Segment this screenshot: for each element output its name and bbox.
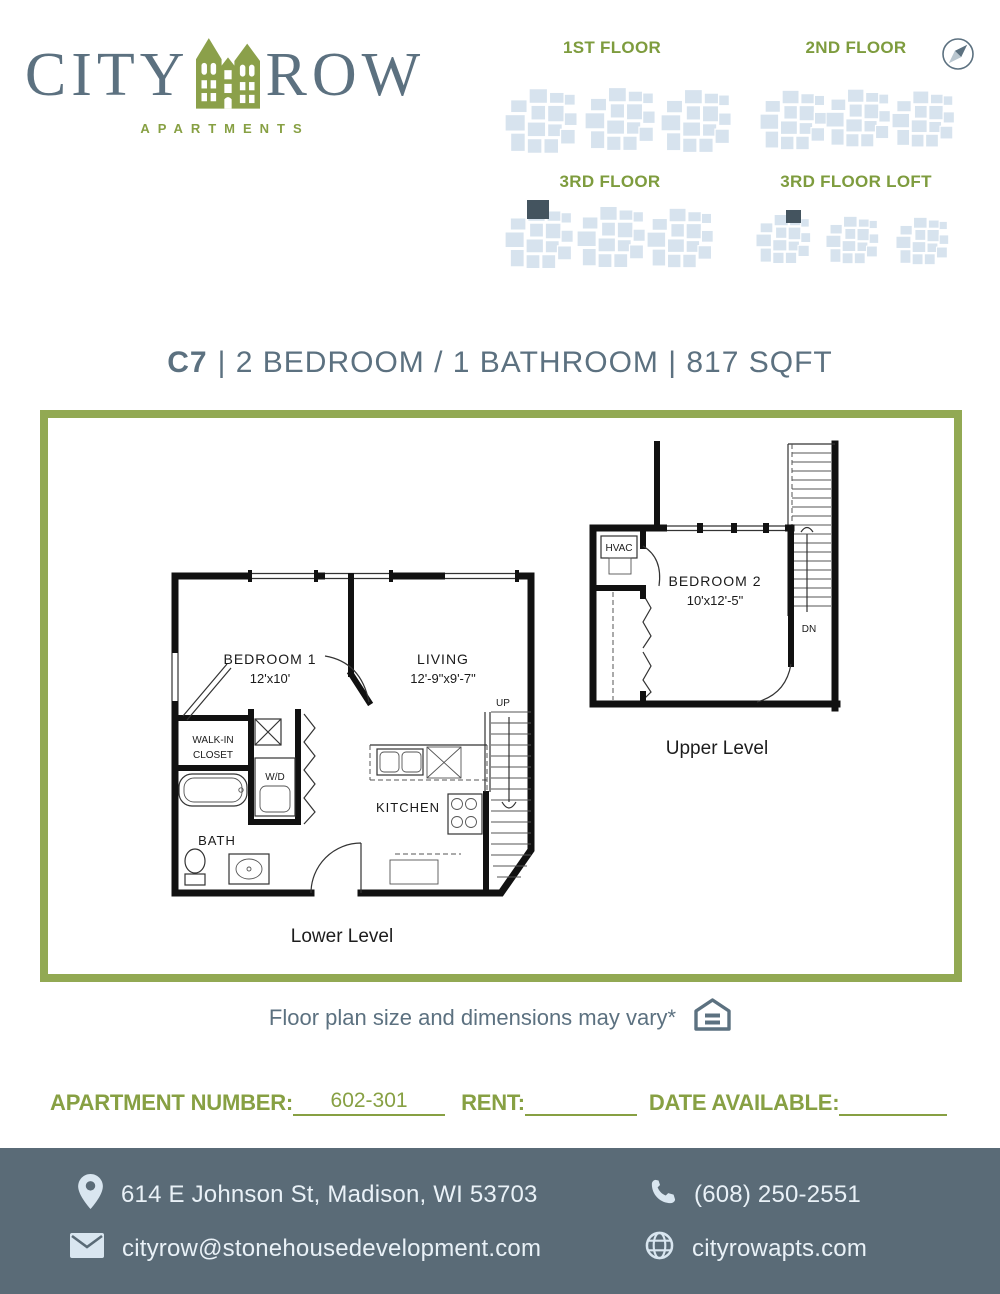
lower-level-caption: Lower Level [232,926,452,948]
label-up: UP [496,698,510,709]
phone-icon [650,1178,676,1213]
disclaimer-text: Floor plan size and dimensions may vary* [269,1005,676,1031]
disclaimer-row: Floor plan size and dimensions may vary* [0,998,1000,1037]
website-text: cityrowapts.com [692,1235,867,1263]
label-living: LIVING [417,651,469,667]
envelope-icon [70,1233,104,1265]
map-label-3rd-floor-loft: 3RD FLOOR LOFT [752,172,960,192]
apartment-number-value: 602-301 [293,1086,445,1116]
map-label-2nd-floor: 2ND FLOOR [756,38,956,58]
floor-map-3rd-loft [752,208,956,272]
rent-value [525,1086,637,1116]
label-walkin-1: WALK-IN [192,735,233,746]
label-bedroom1: BEDROOM 1 [223,651,316,667]
flyer-page: CITY [0,0,1000,1294]
label-living-dims: 12'-9"x9'-7" [410,671,476,686]
logo-row-text: ROW [266,44,426,106]
label-walkin-2: CLOSET [193,750,233,761]
plan-description: | 2 BEDROOM / 1 BATHROOM | 817 SQFT [218,346,833,379]
floor-map-1st [505,82,735,160]
label-bedroom2-dims: 10'x12'-5" [687,593,744,608]
floor-map-2nd [760,82,956,160]
floor-map-3rd [505,200,715,278]
contact-address: 614 E Johnson St, Madison, WI 53703 [78,1172,538,1218]
cityrow-logo: CITY [52,34,398,136]
label-dn: DN [802,624,816,635]
plan-title: C7| 2 BEDROOM / 1 BATHROOM | 817 SQFT [0,346,1000,380]
date-available-value [839,1086,947,1116]
map-label-1st-floor: 1ST FLOOR [502,38,722,58]
equal-housing-icon [694,998,731,1037]
unit-highlight-3rd [527,200,549,219]
contact-phone: (608) 250-2551 [650,1172,861,1218]
phone-text: (608) 250-2551 [694,1181,861,1209]
rent-label: RENT: [461,1090,525,1116]
label-bedroom1-dims: 12'x10' [250,671,290,686]
date-available-label: DATE AVAILABLE: [649,1090,840,1116]
logo-city-text: CITY [25,44,190,106]
label-bedroom2: BEDROOM 2 [668,573,761,589]
logo-apartments-text: APARTMENTS [52,121,398,136]
label-hvac: HVAC [605,543,632,554]
contact-website: cityrowapts.com [645,1226,867,1272]
label-bath: BATH [198,833,236,848]
apartment-form-row: APARTMENT NUMBER: 602-301 RENT: DATE AVA… [50,1086,955,1116]
label-kitchen: KITCHEN [376,800,440,815]
contact-email: cityrow@stonehousedevelopment.com [70,1226,541,1272]
unit-highlight-loft [786,210,801,223]
upper-level-caption: Upper Level [607,738,827,760]
logo-building-icon [196,34,260,115]
label-wd: W/D [265,772,284,783]
upper-level-plan: BEDROOM 2 10'x12'-5" HVAC DN [585,436,847,718]
map-label-3rd-floor: 3RD FLOOR [500,172,720,192]
email-text: cityrow@stonehousedevelopment.com [122,1235,541,1263]
globe-icon [645,1231,674,1267]
address-text: 614 E Johnson St, Madison, WI 53703 [121,1181,538,1209]
lower-level-plan: BEDROOM 1 12'x10' LIVING 12'-9"x9'-7" WA… [165,562,543,907]
plan-code: C7 [167,346,207,379]
apartment-number-label: APARTMENT NUMBER: [50,1090,293,1116]
location-pin-icon [78,1174,103,1216]
footer-bar [0,1148,1000,1294]
